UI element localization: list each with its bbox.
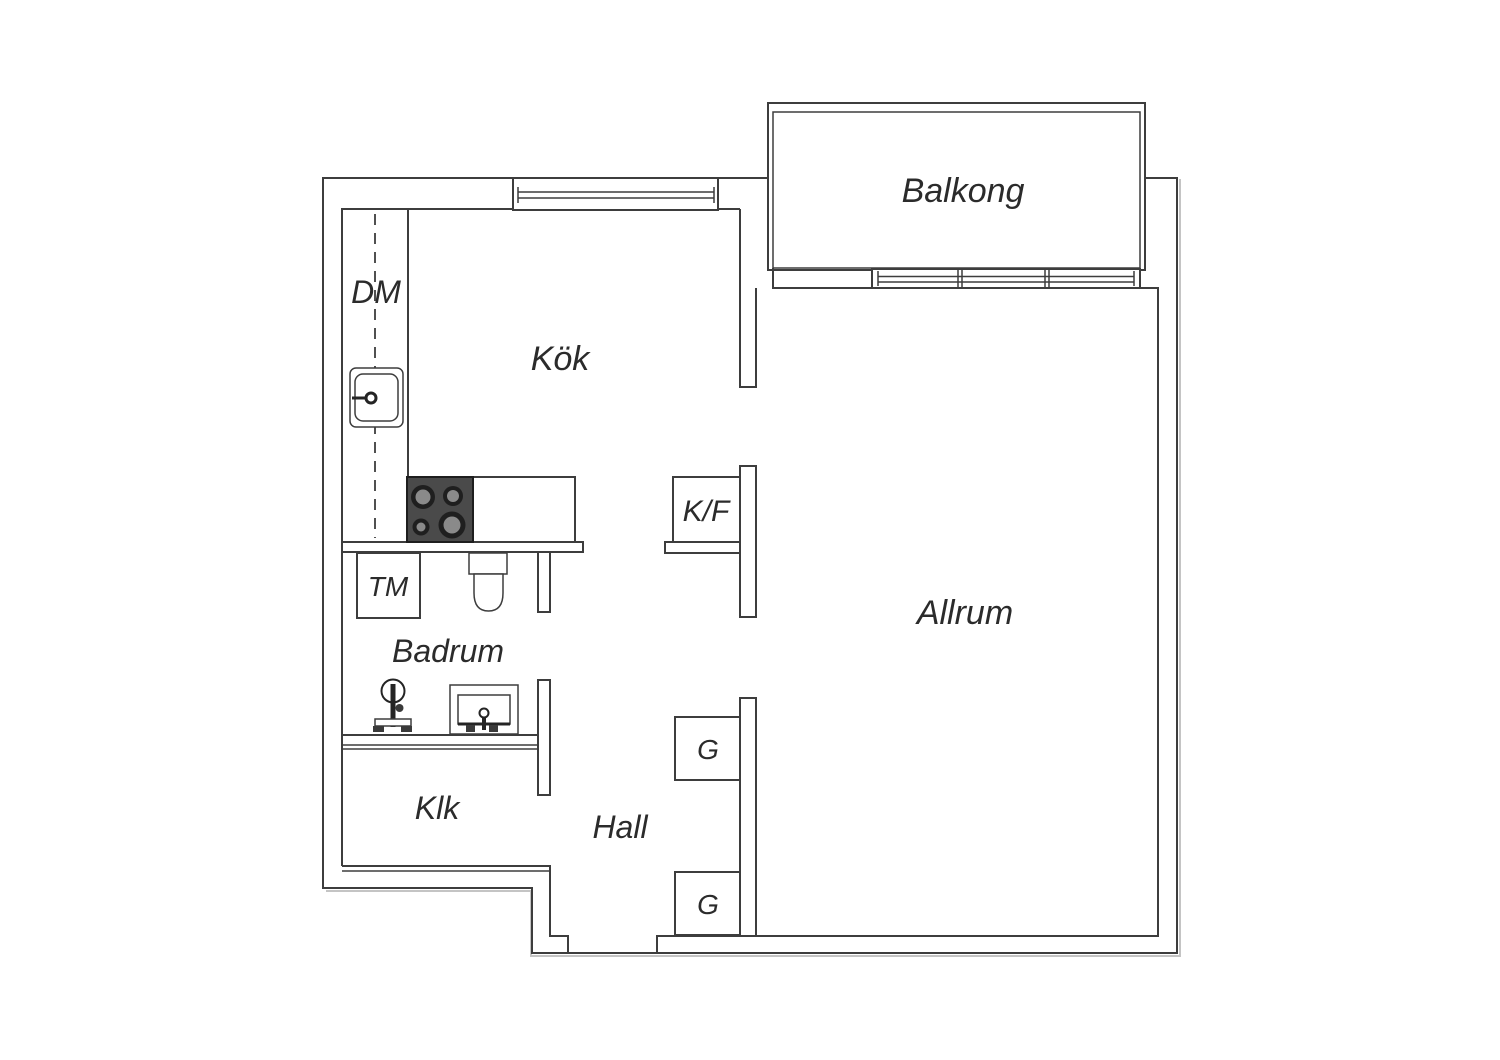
room-label-allrum: Allrum: [915, 594, 1013, 632]
fixture-label-wardrobe-2: G: [697, 889, 719, 920]
stove-burner: [413, 519, 430, 536]
floor-plan: Balkong Kök Allrum Badrum Hall Klk DM K/…: [0, 0, 1500, 1060]
fixture-label-fridge-freezer: K/F: [683, 495, 731, 528]
badrum-hall-wall: [538, 680, 550, 795]
washbasin: [450, 685, 518, 734]
stove: [407, 477, 473, 542]
kok-allrum-wall: [740, 466, 756, 617]
fixture-label-wardrobe-1: G: [697, 734, 719, 765]
kitchen-window: [513, 178, 718, 210]
kf-stub-wall: [665, 542, 740, 553]
room-label-balkong: Balkong: [902, 172, 1025, 210]
fixture-label-dishwasher: DM: [351, 274, 401, 310]
room-label-klk: Klk: [415, 790, 461, 826]
balcony-window: [872, 269, 1140, 288]
klk-top-wall: [342, 745, 538, 749]
counter-peninsula: [473, 477, 575, 542]
room-label-kok: Kök: [531, 340, 592, 378]
hall-allrum-wall: [740, 698, 756, 936]
fixture-label-washing-machine: TM: [368, 571, 409, 602]
badrum-door-stub: [538, 552, 550, 612]
shower-fixture: [373, 680, 412, 733]
kitchen-balcony-wall: [740, 209, 872, 387]
kitchen-sink: [350, 368, 403, 427]
stove-burner: [443, 486, 463, 506]
kok-badrum-wall: [342, 542, 583, 552]
room-label-hall: Hall: [592, 809, 648, 845]
stove-burner: [439, 512, 466, 539]
toilet: [469, 553, 507, 611]
room-label-badrum: Badrum: [392, 633, 504, 669]
stove-burner: [411, 485, 435, 509]
floor-plan-page: Balkong Kök Allrum Badrum Hall Klk DM K/…: [0, 0, 1500, 1060]
